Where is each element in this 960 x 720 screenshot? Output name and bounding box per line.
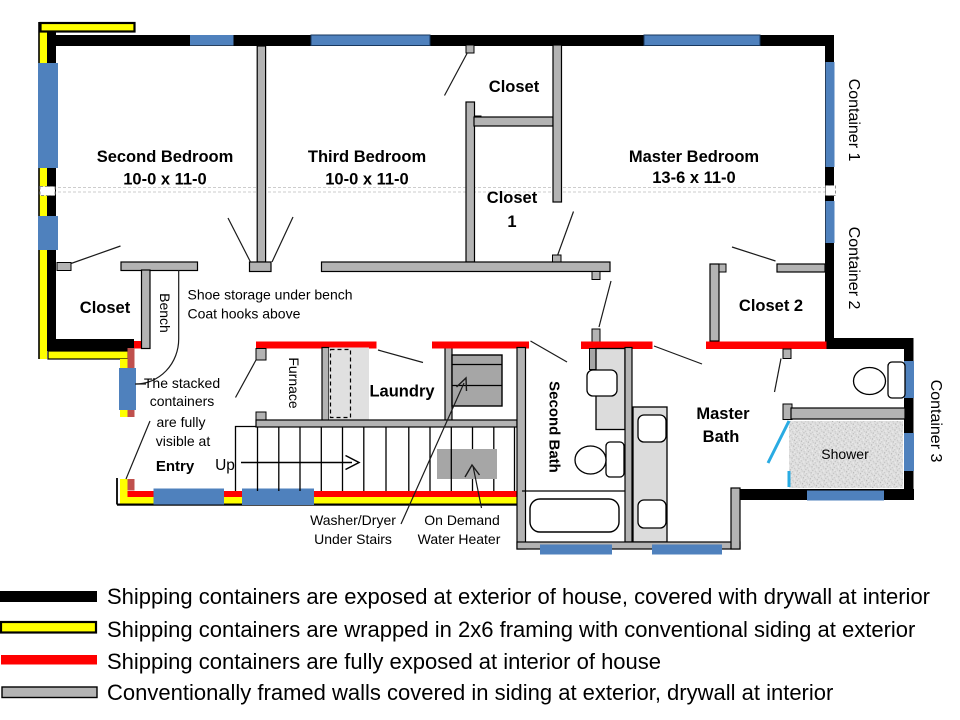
svg-text:Closet: Closet: [487, 189, 538, 207]
svg-text:containers: containers: [150, 393, 215, 409]
svg-text:Under Stairs: Under Stairs: [314, 531, 392, 547]
svg-text:Shoe storage under bench: Shoe storage under bench: [188, 287, 353, 303]
svg-text:Container 1: Container 1: [845, 79, 862, 162]
svg-text:Shipping containers are fully: Shipping containers are fully exposed at…: [107, 649, 661, 674]
svg-text:Closet: Closet: [80, 299, 131, 317]
svg-text:Container 3: Container 3: [927, 380, 944, 463]
svg-text:are fully: are fully: [156, 414, 205, 430]
svg-text:Shipping containers are wrappe: Shipping containers are wrapped in 2x6 f…: [107, 617, 915, 642]
svg-text:Entry: Entry: [156, 458, 195, 475]
svg-text:Bench: Bench: [157, 293, 173, 333]
svg-text:Conventionally framed walls co: Conventionally framed walls covered in s…: [107, 680, 833, 705]
svg-text:Laundry: Laundry: [369, 383, 435, 401]
svg-text:Second Bath: Second Bath: [546, 381, 563, 473]
svg-text:Closet 2: Closet 2: [739, 297, 803, 315]
svg-text:Second Bedroom: Second Bedroom: [97, 148, 234, 166]
svg-text:Bath: Bath: [703, 428, 740, 446]
svg-text:On Demand: On Demand: [424, 512, 499, 528]
svg-text:Water Heater: Water Heater: [418, 531, 501, 547]
svg-text:Master Bedroom: Master Bedroom: [629, 148, 759, 166]
svg-text:Washer/Dryer: Washer/Dryer: [310, 512, 396, 528]
svg-text:Coat hooks above: Coat hooks above: [188, 306, 301, 322]
svg-text:Shower: Shower: [821, 446, 869, 462]
svg-text:Shipping containers are expose: Shipping containers are exposed at exter…: [107, 584, 930, 609]
svg-text:Furnace: Furnace: [286, 357, 302, 409]
svg-text:1: 1: [507, 213, 516, 231]
svg-text:10-0 x 11-0: 10-0 x 11-0: [123, 171, 206, 189]
svg-text:Container 2: Container 2: [845, 227, 862, 310]
svg-text:10-0 x 11-0: 10-0 x 11-0: [325, 171, 408, 189]
svg-text:Master: Master: [696, 405, 750, 423]
svg-text:Up: Up: [215, 457, 235, 474]
svg-text:Third Bedroom: Third Bedroom: [308, 148, 426, 166]
svg-text:visible at: visible at: [156, 433, 211, 449]
svg-text:Closet: Closet: [489, 78, 540, 96]
svg-text:The stacked: The stacked: [144, 375, 220, 391]
svg-text:13-6 x 11-0: 13-6 x 11-0: [652, 169, 735, 187]
